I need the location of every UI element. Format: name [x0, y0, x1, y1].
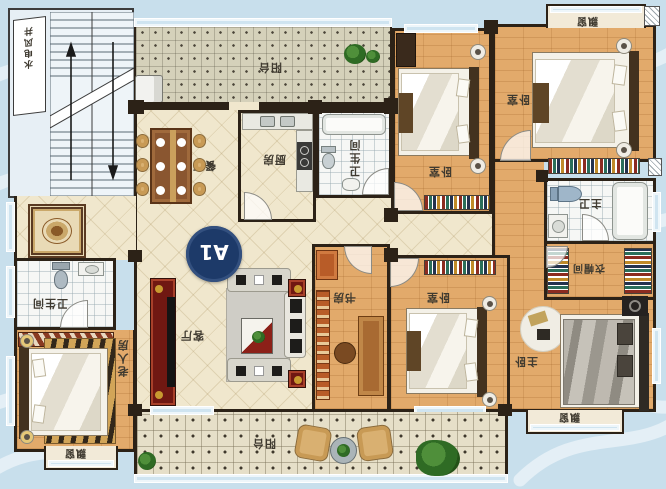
pillow [32, 358, 46, 377]
cushion [537, 329, 550, 340]
balcony-bottom-label: 阳台 [252, 436, 276, 452]
nightstand-icon [470, 44, 486, 60]
dining-chair [193, 134, 206, 148]
living-label: 客厅 [180, 328, 204, 344]
table-plant-icon [252, 331, 265, 343]
cushion [290, 299, 302, 313]
balcony-top-plant2-icon [366, 50, 380, 63]
wall-pillar [536, 170, 548, 182]
floorplan-canvas: 水电风井 阳台 餐厅 厨房 [0, 0, 666, 489]
wall-pillar [384, 248, 398, 262]
pillow [464, 318, 478, 337]
dining-table [150, 128, 192, 204]
elder-room-window [6, 356, 15, 426]
pillow-black [236, 366, 246, 376]
master-bath-window [652, 192, 661, 232]
knob [155, 285, 163, 293]
bathroom-left-window [6, 266, 15, 318]
pillow-black [272, 275, 282, 285]
toilet-tank [550, 187, 558, 201]
headboard [19, 347, 29, 439]
balcony-top-label: 阳台 [258, 60, 282, 76]
bay-window-top-label: 飘窗 [576, 15, 598, 30]
study-bookshelf-icon [316, 290, 330, 400]
bookshelf-icon [424, 195, 490, 210]
shaft-label: 水电风井 [23, 24, 36, 70]
balcony-dining-opening [228, 102, 260, 110]
elder-bed [20, 348, 108, 436]
plate [177, 162, 186, 171]
burner [300, 146, 309, 155]
master-bedroom-label: 主卧 [514, 354, 538, 370]
nightstand-icon [482, 392, 497, 407]
pillow-white [254, 366, 264, 376]
closet-shelf-icon [624, 248, 652, 294]
nightstand-icon [20, 334, 34, 348]
dining-chair [193, 158, 206, 172]
bay-window-master: 飘窗 [526, 410, 624, 434]
living-balcony-window [150, 406, 214, 415]
bedroom-bottom-label: 卧室 [426, 290, 450, 306]
wall-pillar [308, 100, 322, 114]
pillow [456, 78, 470, 97]
master-bedroom-window [652, 328, 661, 384]
headboard [469, 67, 479, 159]
entry-rug [28, 204, 86, 258]
nightstand-icon [616, 142, 632, 158]
burner [300, 158, 309, 167]
toilet-left-icon [52, 262, 70, 290]
bay-window-top: 飘窗 [546, 4, 646, 28]
rug-medallion [42, 218, 72, 244]
ac-platform [644, 6, 660, 26]
desk-chair-icon [334, 342, 356, 364]
toilet-bowl [322, 153, 335, 169]
balcony-top-window [134, 18, 392, 27]
side-table [288, 279, 306, 297]
sofa-bottom [227, 358, 291, 382]
bedroom-top-right-label: 卧室 [506, 92, 530, 108]
plate [177, 186, 186, 195]
sofa-top [227, 268, 291, 292]
balcony-plant-icon [416, 440, 460, 476]
ac-platform [648, 158, 662, 176]
dining-chair [136, 134, 149, 148]
speaker-table-icon [622, 296, 648, 316]
closet-label: 衣帽间 [572, 262, 605, 277]
master-tub-icon [612, 182, 648, 240]
cushion [528, 310, 549, 326]
master-bath-label: 主卫 [578, 196, 602, 212]
fridge-icon [135, 75, 163, 103]
wall-pillar [128, 100, 144, 114]
sink-bowl [85, 265, 99, 274]
plate [156, 162, 165, 171]
wall-pillar [128, 404, 142, 416]
balcony-table [330, 437, 357, 464]
knob [155, 391, 163, 399]
nightstand-icon [482, 296, 497, 311]
dining-chair [136, 182, 149, 196]
master-bed [560, 314, 646, 408]
dining-chair [193, 182, 206, 196]
side-table [288, 370, 306, 388]
balcony-top-plant-icon [344, 44, 366, 64]
headboard [639, 313, 649, 411]
pillow [32, 404, 46, 423]
toilet-bowl [54, 270, 68, 289]
elder-room-label: 老人房 [116, 338, 132, 377]
unit-badge-label: A1 [186, 240, 242, 264]
wall-pillar [384, 208, 398, 222]
kitchen-sink-icon [280, 116, 295, 127]
stove-icon [297, 142, 312, 170]
master-sink-icon [548, 214, 568, 238]
bathroom-left-label: 卫生间 [32, 296, 68, 312]
bay-window-top-glass [550, 6, 642, 13]
throw-blanket [407, 331, 421, 371]
bookshelf-icon [548, 158, 640, 174]
bed-top-left [398, 68, 478, 156]
pillow [612, 110, 628, 132]
sink-icon [342, 178, 360, 191]
balcony-chair [356, 424, 394, 462]
study-label: 书房 [332, 290, 356, 306]
wall-pillar [484, 20, 498, 34]
bay-window-elder-label: 飘窗 [64, 447, 86, 462]
toilet-tank [321, 146, 336, 153]
nightstand-icon [20, 430, 34, 444]
wall-balcony-dining [134, 102, 394, 110]
throw-blanket [399, 93, 413, 133]
plate [156, 186, 165, 195]
toilet-tank [52, 262, 70, 270]
dresser-icon [396, 33, 416, 67]
wall-pillar [128, 250, 142, 262]
headboard [477, 307, 487, 397]
foyer-window [6, 202, 15, 252]
balcony-bottom-rail [134, 474, 508, 483]
bedroom-top-left-label: 卧室 [428, 164, 452, 180]
bay-window-master-label: 飘窗 [558, 411, 580, 426]
study-cabinet-icon [316, 250, 338, 280]
stairs-icon [50, 12, 134, 196]
stairwell: 水电风井 [8, 8, 134, 198]
kitchen-label: 厨房 [262, 152, 286, 168]
bathtub-icon [322, 114, 386, 135]
kitchen-counter-top [242, 113, 313, 130]
balcony-plant-small-icon [138, 452, 156, 470]
speaker-cone [629, 300, 641, 312]
table-runner [170, 130, 176, 202]
pillow [456, 124, 470, 143]
cushion [290, 319, 302, 333]
bed-bottom [406, 308, 486, 394]
toilet-icon [321, 146, 336, 170]
desk-icon [358, 316, 384, 396]
knob [294, 285, 302, 293]
unit-badge: A1 [186, 226, 242, 282]
plate [177, 138, 186, 147]
pillow-dark [617, 323, 633, 345]
nightstand-icon [616, 38, 632, 54]
dining-chair [136, 158, 149, 172]
cushion [290, 339, 302, 353]
pillow [464, 362, 478, 381]
pillow [612, 64, 628, 86]
bathroom-center-label: 卫生间 [348, 138, 364, 177]
table-plant-icon [337, 444, 350, 457]
tv-icon [167, 297, 175, 387]
bed-top-right [532, 52, 638, 148]
throw-blanket [533, 83, 549, 123]
headboard [629, 51, 639, 151]
bay-window-elder: 飘窗 [44, 446, 118, 470]
balcony-chair [293, 423, 332, 462]
tv-cabinet [150, 278, 176, 406]
plate [156, 138, 165, 147]
wall-pillar [384, 98, 398, 114]
pillow-black [272, 366, 282, 376]
pillow-white [254, 275, 264, 285]
pillow-dark [617, 355, 633, 377]
sofa-right [284, 292, 306, 358]
coffee-table [241, 318, 273, 354]
sink-left-icon [78, 262, 104, 276]
bookshelf-icon [424, 260, 496, 275]
kitchen-sink-icon [260, 116, 275, 127]
sink-bowl [552, 220, 565, 233]
nightstand-icon [470, 158, 486, 174]
wall-pillar [498, 404, 512, 416]
knob [294, 376, 302, 384]
pillow-black [236, 275, 246, 285]
bedroom-top-left-window [404, 24, 478, 33]
services-shaft: 水电风井 [13, 16, 46, 116]
